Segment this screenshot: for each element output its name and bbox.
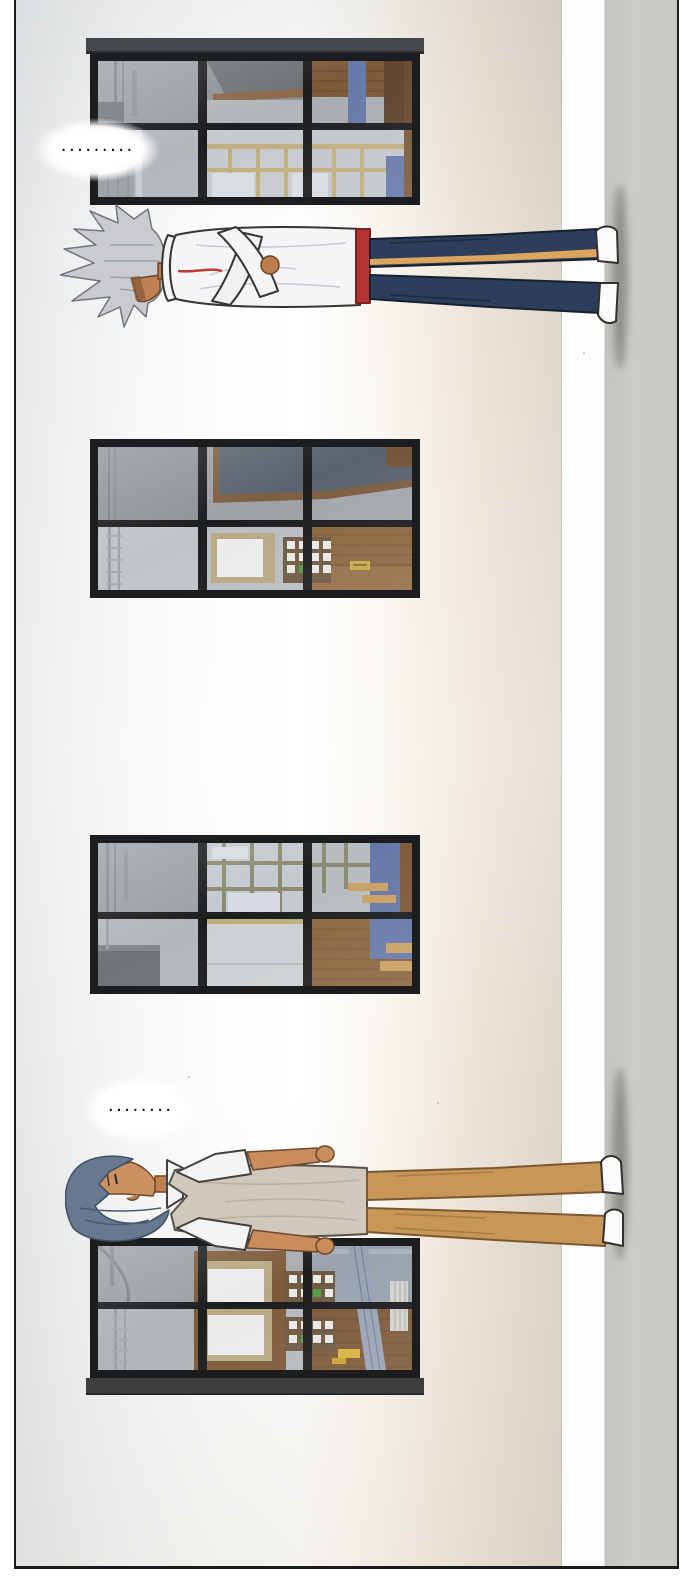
dust-speck <box>188 1076 190 1078</box>
hand <box>316 1238 334 1254</box>
panel-border-right <box>677 0 679 1569</box>
panel-border-left <box>14 0 16 1569</box>
silver-spiky-hair <box>60 205 165 327</box>
comic-page: ......... ........ <box>0 0 690 1592</box>
dust-speck <box>437 1102 439 1104</box>
character-silver-hair-student <box>60 197 620 337</box>
dust-speck <box>583 352 585 354</box>
speech-dots: ......... <box>60 140 134 154</box>
track-pants-left-leg <box>370 275 602 313</box>
shoe <box>603 1210 623 1247</box>
speech-bubble-1: ......... <box>34 118 160 182</box>
hand <box>316 1146 334 1162</box>
panel-border-bottom <box>14 1566 679 1569</box>
tan-trouser-right-leg <box>367 1162 605 1200</box>
classroom-window-2 <box>86 435 424 601</box>
speech-bubble-2: ........ <box>82 1076 198 1144</box>
red-waistband <box>356 229 370 303</box>
character-blue-hair-student <box>65 1132 625 1272</box>
classroom-window-3 <box>86 831 424 997</box>
sneaker <box>596 227 618 264</box>
shoe <box>601 1156 623 1194</box>
fist <box>261 256 279 274</box>
speech-dots: ........ <box>107 1100 173 1114</box>
sneaker <box>598 283 618 323</box>
